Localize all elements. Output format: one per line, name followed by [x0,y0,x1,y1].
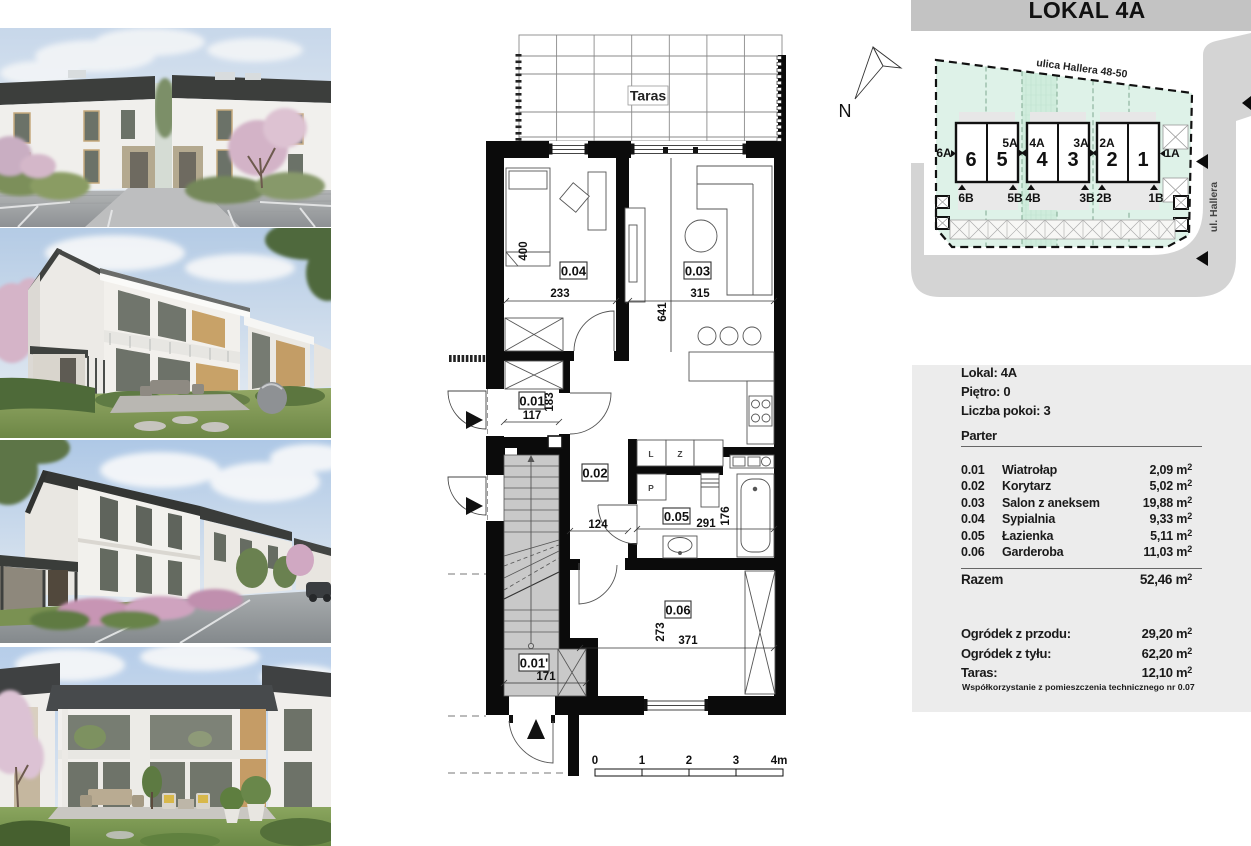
svg-text:2B: 2B [1096,191,1112,205]
svg-text:2A: 2A [1099,136,1115,150]
svg-text:6A: 6A [936,146,952,160]
svg-text:5B: 5B [1007,191,1023,205]
svg-text:P: P [648,483,654,493]
svg-text:ul. Hallera: ul. Hallera [1208,182,1220,232]
svg-text:Taras: Taras [630,88,667,104]
svg-text:171: 171 [536,671,556,683]
svg-text:315: 315 [690,288,710,300]
svg-text:117: 117 [523,410,542,422]
svg-text:2: 2 [1106,149,1117,171]
svg-text:176: 176 [720,506,732,525]
svg-text:124: 124 [588,519,608,531]
svg-text:0.03: 0.03 [685,264,710,279]
svg-text:2: 2 [686,755,692,767]
svg-text:5: 5 [996,149,1007,171]
svg-text:4B: 4B [1025,191,1041,205]
svg-text:5A: 5A [1002,136,1018,150]
svg-text:4A: 4A [1029,136,1045,150]
svg-text:4m: 4m [771,755,788,767]
svg-text:N: N [839,101,852,121]
svg-text:641: 641 [657,302,669,322]
svg-text:0.06: 0.06 [665,603,690,618]
svg-text:0.01: 0.01 [519,394,544,409]
svg-text:3B: 3B [1079,191,1095,205]
svg-text:3A: 3A [1073,136,1089,150]
svg-text:L: L [648,449,653,459]
svg-text:1: 1 [1137,149,1148,171]
svg-text:291: 291 [696,518,716,530]
svg-text:0: 0 [592,755,598,767]
svg-text:6B: 6B [958,191,974,205]
svg-text:3: 3 [1067,149,1078,171]
svg-text:1: 1 [639,755,646,767]
svg-text:1B: 1B [1148,191,1164,205]
svg-text:3: 3 [733,755,739,767]
svg-text:371: 371 [678,635,698,647]
svg-text:183: 183 [544,392,556,411]
svg-text:233: 233 [550,288,569,300]
svg-text:0.05: 0.05 [664,509,689,524]
svg-text:400: 400 [518,241,530,260]
svg-text:0.01': 0.01' [520,656,548,671]
svg-text:0.02: 0.02 [582,466,607,481]
svg-text:273: 273 [655,622,667,641]
svg-text:0.04: 0.04 [561,264,587,279]
svg-text:6: 6 [965,149,976,171]
svg-text:4: 4 [1036,149,1048,171]
svg-text:Z: Z [677,449,682,459]
